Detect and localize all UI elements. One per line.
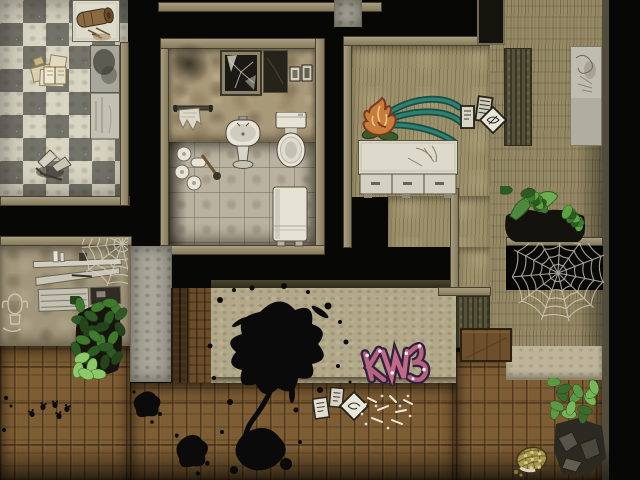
papers-graphic bbox=[28, 50, 78, 92]
plant-c-graphic bbox=[548, 378, 608, 478]
graffiti-tag-pink bbox=[358, 336, 442, 386]
game-viewport[interactable] bbox=[0, 0, 640, 480]
spider-web-shelf bbox=[82, 238, 128, 286]
dots-graphic bbox=[0, 392, 16, 436]
gray-pillar bbox=[334, 0, 362, 27]
debris-graphic bbox=[30, 142, 76, 184]
splatter-graphic bbox=[200, 282, 370, 480]
toilet-paper-rolls[interactable] bbox=[175, 145, 221, 195]
counter-drawers-graphic bbox=[358, 140, 458, 198]
mid-frame-bar bbox=[438, 287, 491, 296]
woven-basket[interactable] bbox=[512, 442, 552, 478]
graffiti-pink-graphic bbox=[358, 336, 442, 386]
basket-graphic bbox=[512, 442, 552, 478]
plaster-column bbox=[130, 246, 172, 382]
wall-cards-graphic bbox=[459, 95, 507, 140]
sink-graphic bbox=[224, 116, 262, 170]
counter-slab-graphic bbox=[90, 45, 120, 140]
olive-column bbox=[504, 48, 532, 146]
wooden-crate[interactable] bbox=[460, 328, 512, 362]
table-with-log[interactable] bbox=[72, 0, 120, 42]
towel-graphic bbox=[173, 104, 213, 136]
torn-towel[interactable] bbox=[173, 104, 213, 136]
window-top-right bbox=[477, 0, 505, 45]
paw-prints bbox=[26, 398, 78, 422]
broken-mirror-cabinet[interactable] bbox=[220, 50, 262, 96]
graffiti-flame bbox=[358, 92, 466, 144]
right-wall-band bbox=[506, 346, 602, 380]
left-edge-dots bbox=[0, 392, 16, 436]
small-splat-1 bbox=[130, 386, 164, 424]
wall-poster[interactable] bbox=[570, 46, 602, 146]
spider-web-large bbox=[512, 243, 604, 327]
splat-graphic bbox=[172, 428, 212, 476]
small-splat-2 bbox=[172, 428, 212, 476]
smudge-graphic bbox=[168, 42, 210, 86]
hamper-graphic bbox=[272, 186, 308, 248]
scattered-papers[interactable] bbox=[28, 50, 78, 92]
right-room-wall-lower bbox=[388, 196, 490, 247]
plant-a-graphic bbox=[70, 296, 128, 380]
plants-b-graphic bbox=[500, 186, 590, 244]
poster-graphic bbox=[570, 46, 602, 146]
right-room-frame-top bbox=[343, 36, 491, 46]
scattered-bones bbox=[352, 388, 416, 432]
web-graphic bbox=[512, 243, 604, 327]
bathroom-frame-right bbox=[315, 38, 325, 254]
crate-graphic bbox=[460, 328, 512, 362]
wall-smudge bbox=[168, 42, 210, 86]
sideboard-counter[interactable] bbox=[358, 140, 458, 198]
counter-slabs bbox=[90, 45, 120, 140]
splat-graphic bbox=[130, 386, 164, 424]
pedestal-sink[interactable] bbox=[224, 116, 262, 170]
flame-graffiti-graphic bbox=[358, 92, 466, 144]
checker-frame-right bbox=[120, 42, 129, 206]
cactus-graphic bbox=[0, 286, 30, 334]
web-graphic bbox=[82, 238, 128, 286]
rolls-graphic bbox=[175, 145, 221, 195]
picture-frames[interactable] bbox=[263, 50, 313, 95]
walnut-column bbox=[171, 288, 188, 384]
center-frame-right bbox=[450, 188, 459, 289]
ink-splatter-large bbox=[200, 282, 370, 480]
pictures-graphic bbox=[263, 50, 313, 95]
checker-frame-bottom bbox=[0, 196, 130, 206]
bush-plant bbox=[70, 296, 128, 380]
toilet-graphic bbox=[274, 112, 308, 170]
bones-graphic bbox=[352, 388, 416, 432]
potted-plant-rocks bbox=[548, 378, 608, 478]
right-room-frame-left bbox=[343, 36, 352, 248]
cactus-doodle bbox=[0, 286, 30, 334]
table-log-graphic bbox=[72, 0, 120, 42]
hamper-box[interactable] bbox=[272, 186, 308, 248]
pawprints-graphic bbox=[26, 398, 78, 422]
toilet[interactable] bbox=[274, 112, 308, 170]
plants-over-doorway bbox=[500, 186, 590, 244]
mirror-cabinet-graphic bbox=[220, 50, 262, 96]
broken-debris[interactable] bbox=[30, 142, 76, 184]
wall-cards[interactable] bbox=[459, 95, 507, 140]
